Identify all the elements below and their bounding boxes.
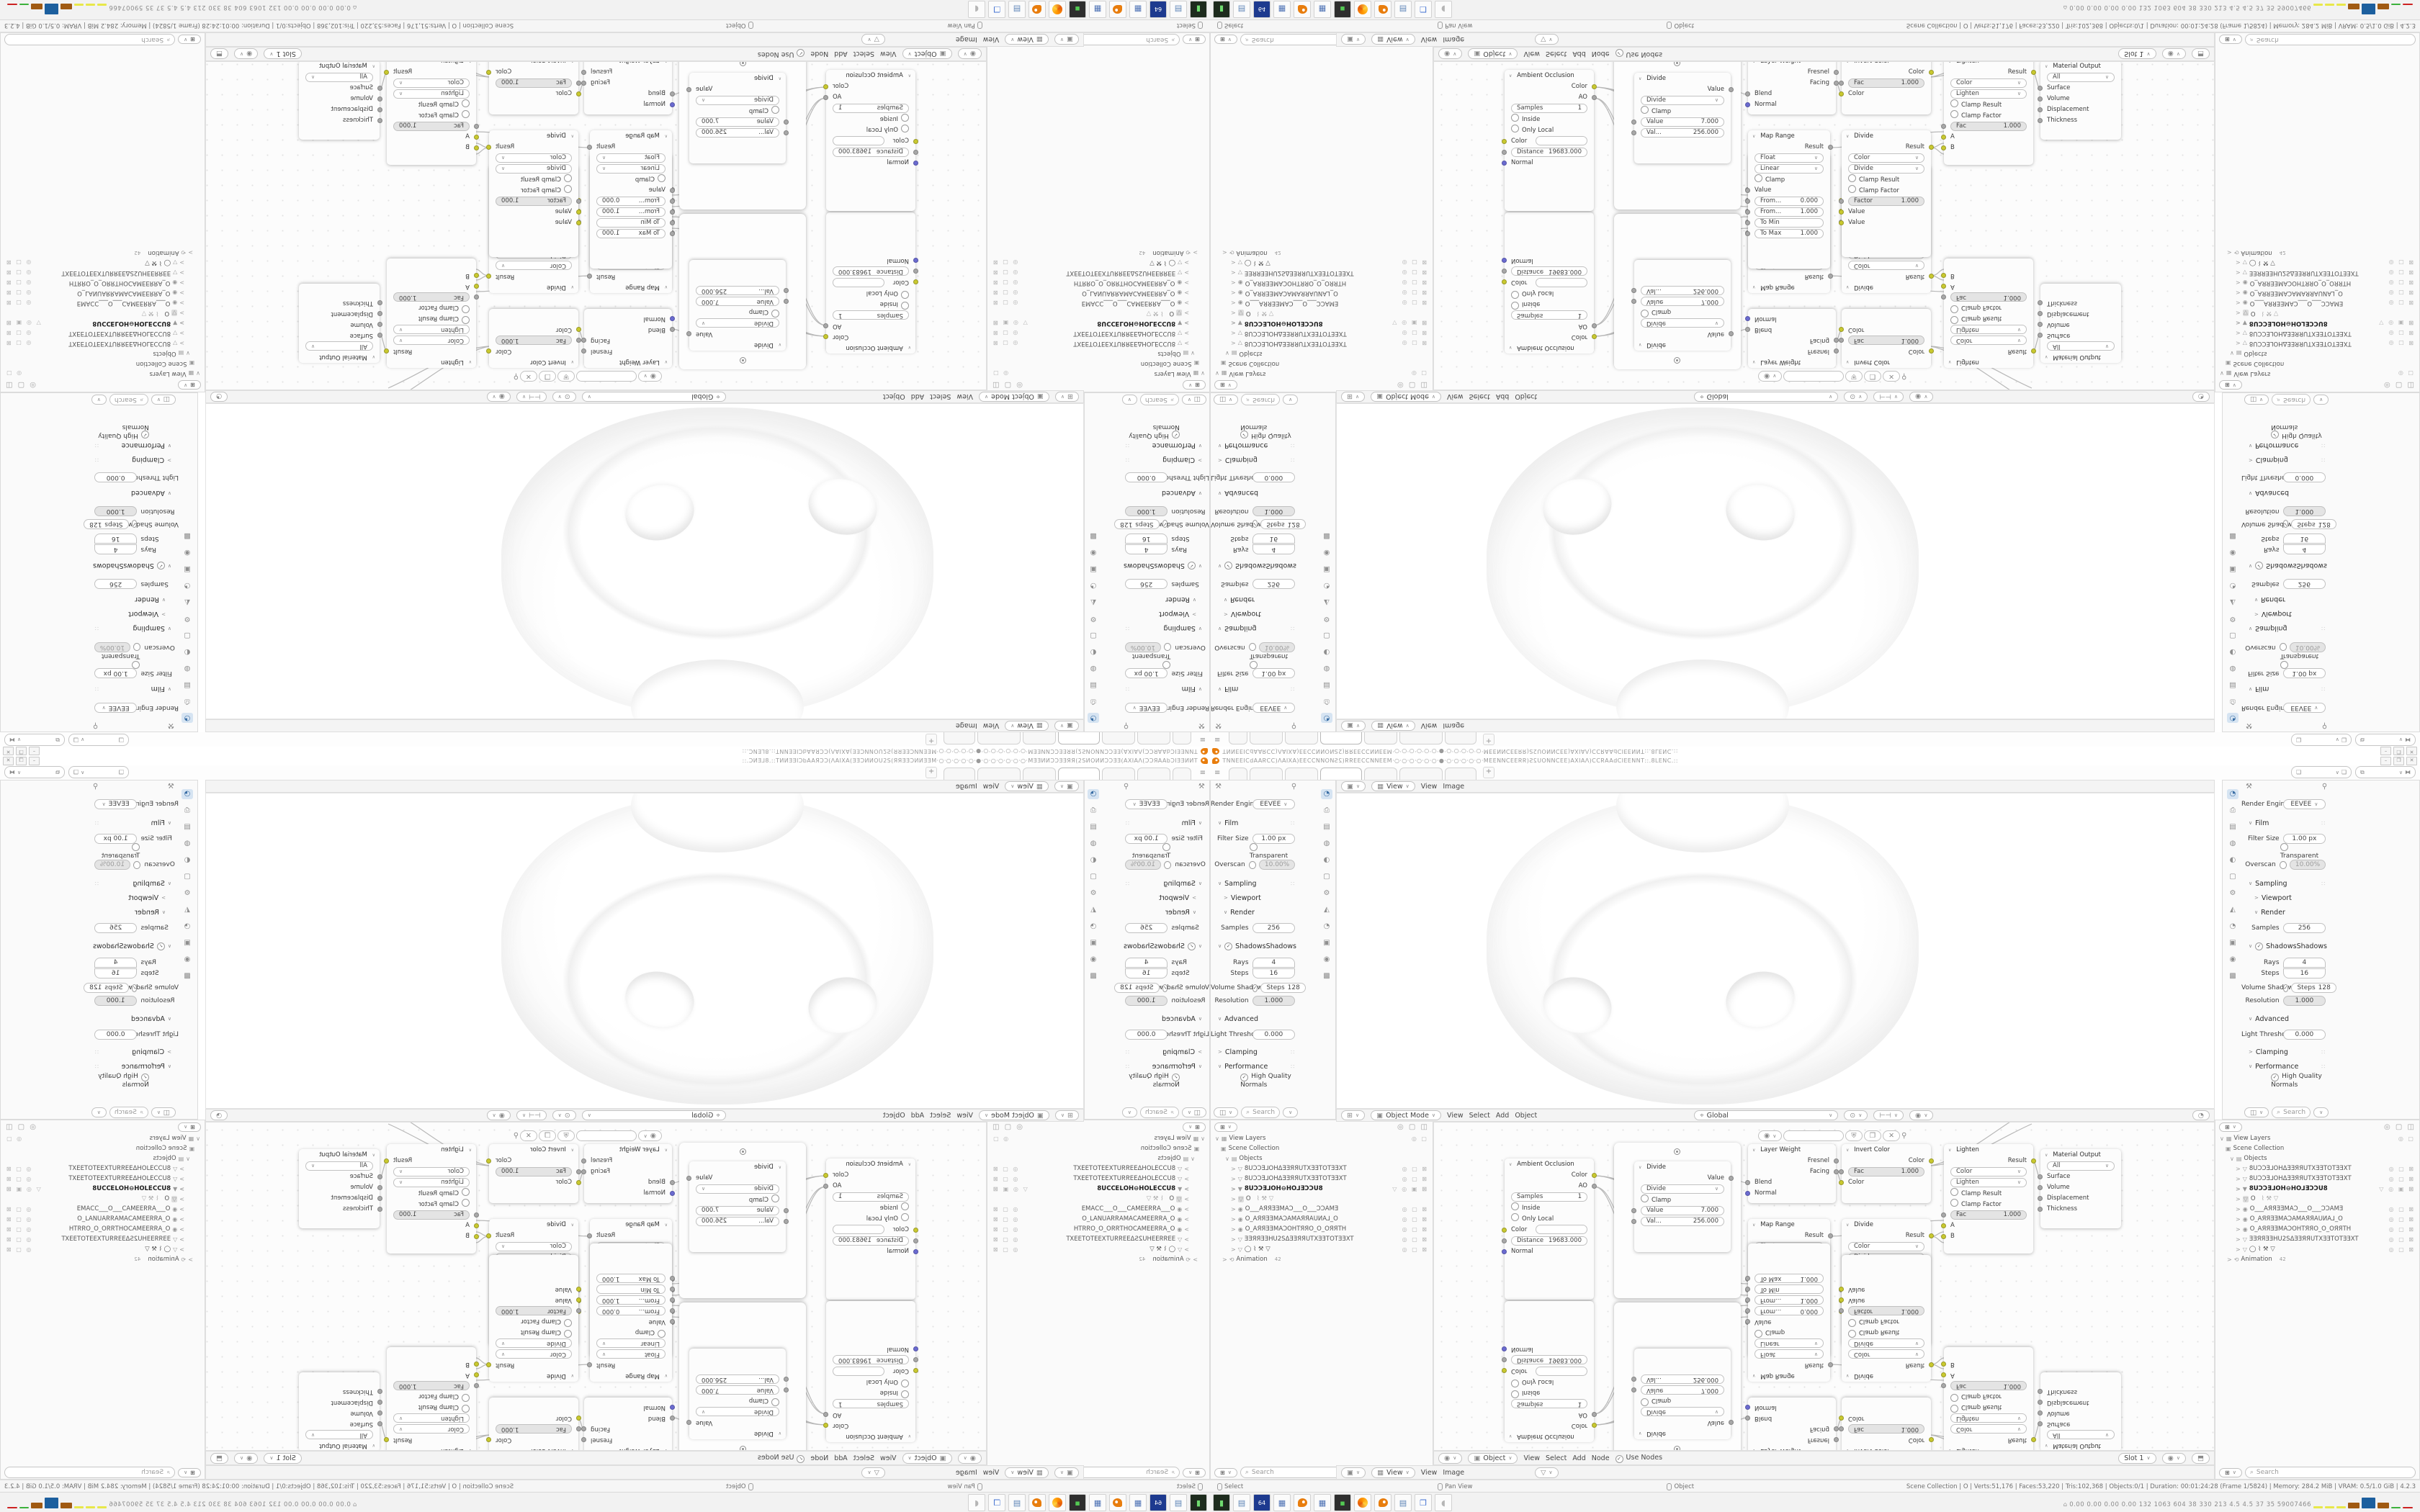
shader-context-select[interactable]: ▣Object∨: [1468, 1453, 1518, 1464]
outliner-row[interactable]: >▽8UƆƆƎ⅃OHΔƎƎЯЯUTXƎƎTOTƎƎXT◎ ▢ ⊠: [1211, 1174, 1433, 1184]
outliner-row-active[interactable]: >▼8UƆƆƎ⅃OH⊖HO⅃ƎƆƆU8▽ ◎ ▣ ⊠: [987, 318, 1209, 328]
outliner-row[interactable]: >◉O_AЯЯƎƎMAƆAMAЯЯAUИA⅃_O◎ ▢ ⊠: [1, 288, 205, 298]
filter-size-field[interactable]: 1.00 px: [1125, 668, 1168, 678]
notepad-icon[interactable]: ▤: [1394, 1, 1412, 18]
blender-icon[interactable]: [1028, 1494, 1046, 1511]
outliner-row-viewlayers[interactable]: ∨▦View Layers◎ ▢: [987, 369, 1209, 379]
image-view-select[interactable]: ▦View∨: [1371, 721, 1415, 731]
outliner-row[interactable]: >◉O___AЯЯƎƎMAƆ___O___ƆƆAMƎ◎ ▢ ⊠: [1, 298, 205, 308]
gimp-icon[interactable]: ◖: [1435, 1494, 1452, 1511]
snap-toggle[interactable]: ⊙∨: [1844, 392, 1868, 402]
transparent-toggle[interactable]: Transparent: [94, 653, 140, 670]
node-layer-weight[interactable]: ∨ Layer Weight Fresnel Facing Blend Norm…: [584, 61, 672, 114]
dividec-clamp-factor-toggle[interactable]: Clamp Factor: [1842, 1316, 1931, 1327]
shading-toggle[interactable]: ◔: [2192, 392, 2210, 402]
volume-steps-field[interactable]: Steps128: [1114, 519, 1159, 529]
gimp-icon[interactable]: ◖: [968, 1494, 985, 1511]
lighten-fac-field[interactable]: Fac1.000: [1950, 122, 2027, 131]
image-view-select[interactable]: ▦View∨: [1005, 721, 1049, 731]
hq-normals-toggle[interactable]: ✓High Quality Normals: [94, 1073, 149, 1089]
maprange-interp-select[interactable]: Linear∨: [1754, 1338, 1824, 1348]
outliner-row[interactable]: >▽8UƆƆƎ⅃OHΔƎƎЯЯUTXƎƎTOTƎƎXT◎ ▢ ⊠: [1211, 338, 1433, 348]
node-divide-color[interactable]: ∨ Divide Result Color∨ Divide∨ Clamp Res…: [489, 130, 578, 257]
resolution-field[interactable]: 1.000: [2283, 506, 2326, 516]
files-icon[interactable]: ❐: [988, 1494, 1005, 1511]
shading-toggle[interactable]: ◔: [210, 392, 228, 402]
files-icon[interactable]: ❐: [1415, 1, 1432, 18]
notepad-icon[interactable]: ▤: [1170, 1494, 1187, 1511]
properties-tab-strip[interactable]: ◔⎙ ▤◍ ◐▢ ⚙◭ ◔▣ ◉▩: [179, 789, 195, 981]
outliner-filter-button[interactable]: ⊞∨: [1183, 1468, 1206, 1477]
node-divide-color[interactable]: ∨ Divide Result Color∨ Divide∨ Clamp Res…: [1842, 1255, 1931, 1382]
workspace-tab[interactable]: [1399, 732, 1443, 744]
properties-tab-strip[interactable]: ◔⎙ ▤◍ ◐▢ ⚙◭ ◔▣ ◉▩: [179, 531, 195, 723]
outliner-row-objects[interactable]: ∨▤Objects: [2215, 348, 2419, 359]
outliner-row[interactable]: >◉O_AЯЯƎƎMAƆOHTЯЯO_O_OЯЯTH◎ ▢ ⊠: [2215, 1224, 2419, 1234]
options-button[interactable]: ∨: [1122, 395, 1137, 405]
menu-select[interactable]: Select: [853, 1454, 874, 1462]
resolution-field[interactable]: 1.000: [94, 996, 138, 1006]
volume-steps-field[interactable]: Steps128: [84, 519, 128, 529]
workspace-tab-active[interactable]: [1320, 732, 1362, 744]
rays-field[interactable]: 4: [2283, 544, 2326, 554]
lighten-type-select[interactable]: Color∨: [393, 1424, 470, 1434]
pin-icon[interactable]: ⚲: [93, 721, 98, 729]
blender-icon[interactable]: [1109, 1494, 1126, 1511]
properties-tab-strip[interactable]: ◔⎙ ▤◍ ◐▢ ⚙◭ ◔▣ ◉▩: [1319, 789, 1335, 981]
workspace-tab[interactable]: [1023, 732, 1056, 744]
pin-icon[interactable]: ⚲: [2322, 783, 2327, 791]
outliner-row[interactable]: >◉O_AЯЯƎƎMAƆAMAЯЯAUИA⅃_O◎ ▢ ⊠: [1211, 288, 1433, 298]
film-section[interactable]: ∨Film∷: [2241, 819, 2331, 827]
node-divide-a[interactable]: ∨ Divide Value Divide∨ Clamp Value7.000 …: [1634, 73, 1731, 163]
id-mask-button[interactable]: ⬒: [210, 49, 228, 60]
ao-inside-toggle[interactable]: Inside: [1505, 1387, 1594, 1398]
dividec-clamp-result-toggle[interactable]: Clamp Result: [1842, 174, 1931, 185]
menu-view[interactable]: View: [880, 50, 897, 58]
outliner-row[interactable]: >▽8UƆƆƎ⅃OHΔƎƎЯЯUTXƎƎTOTƎƎXT◎ ▢ ⊠: [1211, 1164, 1433, 1174]
outliner-row-viewlayers[interactable]: ∨▦View Layers◎ ▢: [987, 1133, 1209, 1143]
ao-color-swatch[interactable]: [833, 136, 884, 145]
overscan-field[interactable]: 10.00%: [94, 642, 130, 652]
node-material-output[interactable]: ∨ Material Output All∨ Surface Volume Di…: [2040, 1372, 2121, 1451]
gimp-icon[interactable]: ◖: [1435, 1, 1452, 18]
outliner-row[interactable]: >▽O⌇ ⚒ ▽: [2215, 308, 2419, 318]
steps-field[interactable]: 16: [94, 534, 138, 544]
overscan-toggle[interactable]: [1164, 644, 1171, 652]
outliner-row-objects[interactable]: ∨▤Objects: [2215, 1153, 2419, 1164]
performance-section[interactable]: ∨Performance∷: [1211, 442, 1301, 450]
lighten-fac-field[interactable]: Fac1.000: [393, 122, 470, 131]
menu-icon[interactable]: ≡: [1196, 734, 1206, 743]
editor-type-select[interactable]: ▣∨: [1341, 1467, 1366, 1478]
hq-normals-toggle[interactable]: ✓High Quality Normals: [1125, 423, 1180, 439]
resolution-field[interactable]: 1.000: [1125, 996, 1168, 1006]
shader-node-editor[interactable]: ◉∨ ⛨ ❐ ✕ ⚲: [205, 1122, 987, 1451]
outliner-row-active[interactable]: >▼8UƆƆƎ⅃OH⊖HO⅃ƎƆƆU8▽ ◎ ▣ ⊠: [1211, 1184, 1433, 1194]
menu-node[interactable]: Node: [1592, 1454, 1610, 1462]
pin-icon[interactable]: ⚲: [1124, 783, 1129, 791]
render-subsection[interactable]: ∨Render: [2241, 596, 2331, 604]
outliner-row[interactable]: >◉O_AЯЯƎƎMAƆAMAЯЯAUИA⅃_O◎ ▢ ⊠: [987, 288, 1209, 298]
mode-select[interactable]: ▣Object Mode∨: [1371, 392, 1441, 402]
options-button[interactable]: ∨: [1283, 1107, 1298, 1117]
divide-clamp-toggle[interactable]: Clamp: [1634, 106, 1731, 117]
maprange-type-select[interactable]: Float∨: [596, 1349, 665, 1359]
node-invert-color[interactable]: ∨ Invert Color Color Fac1.000 Color: [1842, 1398, 1931, 1451]
divide-value2-field[interactable]: Val...256.000: [1641, 1374, 1724, 1384]
notepad-icon[interactable]: ▤: [1170, 1, 1187, 18]
menu-image[interactable]: Image: [1443, 783, 1464, 791]
outliner-row-animation[interactable]: >⟲Animation42: [987, 1254, 1209, 1264]
node-map-range[interactable]: ∨ Map Range Result Float∨ Linear∨ Clamp …: [1748, 1243, 1830, 1382]
mode-select[interactable]: ▣Object Mode∨: [979, 392, 1049, 402]
editor-type-select[interactable]: ▣∨: [1054, 35, 1079, 45]
options-button[interactable]: ∨: [2313, 1107, 2329, 1117]
menu-select[interactable]: Select: [1469, 393, 1490, 401]
film-section[interactable]: ∨Film∷: [1119, 819, 1209, 827]
menu-view[interactable]: View: [1421, 36, 1438, 44]
editor-type-select[interactable]: ⊞∨: [1055, 392, 1079, 402]
light-threshold-field[interactable]: 0.000: [2283, 1030, 2326, 1040]
use-nodes-toggle[interactable]: ✓Use Nodes: [1615, 50, 1663, 59]
menu-image[interactable]: Image: [1443, 1469, 1464, 1477]
divide-op-select[interactable]: Divide∨: [696, 96, 779, 105]
node-layer-weight[interactable]: ∨ Layer Weight Fresnel Facing Blend Norm…: [584, 1398, 672, 1451]
outliner-row[interactable]: >▽8UƆƆƎ⅃OHΔƎƎЯЯUTXƎƎTOTƎƎXT◎ ▢ ⊠: [2215, 328, 2419, 338]
advanced-section[interactable]: ∨Advanced: [2241, 1015, 2331, 1023]
terminal-icon[interactable]: ▮: [1190, 1494, 1207, 1511]
hq-normals-toggle[interactable]: ✓High Quality Normals: [2271, 423, 2326, 439]
use-nodes-toggle[interactable]: ✓Use Nodes: [758, 50, 805, 59]
menu-object[interactable]: Object: [883, 1112, 905, 1120]
overscan-toggle[interactable]: [133, 644, 140, 652]
ao-samples-field[interactable]: Samples1: [1511, 1399, 1587, 1408]
divide-op-select[interactable]: Divide∨: [696, 1407, 779, 1416]
editor-type-select[interactable]: ▣∨: [1341, 721, 1366, 731]
editor-type-select[interactable]: ◉∨: [1438, 1453, 1462, 1464]
shader-context-select[interactable]: ▣Object∨: [1468, 49, 1518, 60]
filter-funnel-button[interactable]: ▽∨: [861, 1467, 884, 1478]
shader-node-editor[interactable]: ◉∨ ⛨ ❐ ✕ ⚲: [1433, 61, 2215, 390]
samples-field[interactable]: 256: [1252, 579, 1296, 589]
outliner-filter-icons[interactable]: ◎ ▢ ◫: [2384, 382, 2416, 390]
menu-view[interactable]: View: [983, 783, 1000, 791]
lighten-op-select[interactable]: Lighten∨: [393, 1413, 470, 1423]
performance-section[interactable]: ∨Performance∷: [89, 442, 179, 450]
advanced-section[interactable]: ∨Advanced: [1119, 1015, 1209, 1023]
steps-field[interactable]: 16: [1125, 534, 1168, 544]
resolution-field[interactable]: 1.000: [94, 506, 138, 516]
outliner-row-objects[interactable]: ∨▤Objects: [1211, 348, 1433, 359]
ao-samples-field[interactable]: Samples1: [1511, 104, 1587, 113]
editor-type-button[interactable]: ◫∨: [2244, 395, 2269, 405]
node-invert-color[interactable]: ∨ Invert Color Color Fac1.000 Color: [1842, 61, 1931, 114]
shadows-section[interactable]: ∨✓ShadowsShadows: [89, 562, 179, 570]
outliner-search-input[interactable]: ⌕Search: [2245, 1467, 2416, 1478]
dividec-factor-field[interactable]: Factor1.000: [1848, 197, 1924, 206]
node-lighten[interactable]: ∨ Lighten Result Color∨ Lighten∨ Clamp R…: [1944, 61, 2033, 165]
editor-type-button[interactable]: ◫∨: [2244, 1107, 2269, 1117]
light-threshold-field[interactable]: 0.000: [94, 472, 138, 482]
node-ambient-occlusion[interactable]: ∨ Ambient Occlusion Color AO Samples1 In…: [826, 1301, 915, 1442]
search-input[interactable]: ⌕Search: [109, 394, 148, 405]
menu-select[interactable]: Select: [930, 393, 951, 401]
dividec-factor-field[interactable]: Factor1.000: [496, 197, 572, 206]
outliner-row[interactable]: >▽8UƆƆƎ⅃OHΔƎƎЯЯUTXƎƎTOTƎƎXT◎ ▢ ⊠: [987, 328, 1209, 338]
snap-toggle[interactable]: ⊙∨: [552, 392, 576, 402]
outliner-row[interactable]: >▽O⌇ ⚒ ▽: [987, 308, 1209, 318]
performance-section[interactable]: ∨Performance∷: [2241, 1063, 2331, 1071]
render-subsection[interactable]: ∨Render: [1211, 909, 1301, 917]
mode-select[interactable]: ▣Object Mode∨: [1371, 1110, 1441, 1120]
menu-image[interactable]: Image: [956, 783, 977, 791]
rays-field[interactable]: 4: [1125, 544, 1168, 554]
search-input[interactable]: ⌕Search: [2272, 394, 2311, 405]
workspace-tab[interactable]: [1023, 768, 1056, 780]
restore-button[interactable]: ❐: [2393, 747, 2404, 756]
node-invert-color[interactable]: ∨ Invert Color Color Fac1.000 Color: [489, 61, 578, 114]
render-subsection[interactable]: ∨Render: [89, 909, 179, 917]
workspace-tab[interactable]: [1250, 732, 1283, 744]
overscan-toggle[interactable]: [2280, 861, 2287, 869]
steps-field[interactable]: 16: [1125, 968, 1168, 978]
volume-steps-field[interactable]: Steps128: [1114, 983, 1159, 993]
outliner-row[interactable]: >▽◯ ⌇ ⚒ ▽◎ ▢ ⊠: [1, 1244, 205, 1254]
ao-inside-toggle[interactable]: Inside: [826, 1387, 915, 1398]
dividec-clamp-result-toggle[interactable]: Clamp Result: [489, 174, 578, 185]
clamping-section[interactable]: >Clamping∷: [1119, 456, 1209, 464]
samples-field[interactable]: 256: [2283, 923, 2326, 933]
outliner-row-scene-collection[interactable]: ▣Scene Collection: [1, 359, 205, 369]
pin-icon[interactable]: ⚲: [1291, 783, 1296, 791]
menu-view[interactable]: View: [956, 393, 973, 401]
menu-select[interactable]: Select: [853, 50, 874, 58]
calculator-icon[interactable]: ▦: [1273, 1494, 1291, 1511]
search-input[interactable]: ⌕Search: [109, 1107, 148, 1118]
outliner-row[interactable]: >◉O_AЯЯƎƎMAƆOHTЯЯO_O_OЯЯTH◎ ▢ ⊠: [1211, 278, 1433, 288]
menu-icon[interactable]: ≡: [1214, 734, 1224, 743]
menu-view[interactable]: View: [1421, 783, 1438, 791]
shadows-section[interactable]: ∨✓ShadowsShadows: [1119, 562, 1209, 570]
outliner-filter-icons[interactable]: ◎ ▢ ◫: [1397, 382, 1429, 390]
image-view-select[interactable]: ▦View∨: [1371, 35, 1415, 45]
maprange-type-select[interactable]: Float∨: [1754, 1349, 1824, 1359]
advanced-section[interactable]: ∨Advanced: [89, 1015, 179, 1023]
node-ambient-occlusion[interactable]: ∨ Ambient Occlusion Color AO Samples1 In…: [1505, 70, 1594, 211]
outliner-row-animation[interactable]: >⟲Animation42: [1211, 248, 1433, 258]
outliner-display-mode[interactable]: ⊞∨: [1214, 1122, 1237, 1132]
menu-view[interactable]: View: [983, 1469, 1000, 1477]
workspace-tab-active[interactable]: [1320, 768, 1362, 780]
filter-funnel-button[interactable]: ▽∨: [861, 35, 884, 45]
outliner-row-animation[interactable]: >⟲Animation42: [987, 248, 1209, 258]
render-engine-select[interactable]: EEVEE∨: [1252, 703, 1296, 713]
divide-op-select[interactable]: Divide∨: [1641, 1407, 1724, 1416]
clamping-section[interactable]: >Clamping∷: [89, 456, 179, 464]
light-threshold-field[interactable]: 0.000: [1125, 472, 1168, 482]
menu-add[interactable]: Add: [834, 1454, 847, 1462]
node-lighten[interactable]: ∨ Lighten Result Color∨ Lighten∨ Clamp R…: [387, 1347, 476, 1451]
blender-icon[interactable]: [1109, 1, 1126, 18]
pin-icon[interactable]: ⚲: [1291, 721, 1296, 729]
menu-icon[interactable]: ≡: [1196, 769, 1206, 778]
editor-type-button[interactable]: ◫∨: [1214, 1107, 1238, 1117]
menu-select[interactable]: Select: [1546, 50, 1567, 58]
scene-selector[interactable]: ❏∨❏: [68, 734, 129, 746]
maprange-from-max-field[interactable]: From...1.000: [1754, 207, 1824, 217]
outliner-display-mode[interactable]: ⊞∨: [1183, 381, 1206, 390]
menu-select[interactable]: Select: [1469, 1112, 1490, 1120]
maprange-type-select[interactable]: Float∨: [596, 153, 665, 163]
outliner-row[interactable]: >◉O_AЯЯƎƎMAƆOHTЯЯO_O_OЯЯTH◎ ▢ ⊠: [2215, 278, 2419, 288]
blender-icon[interactable]: [1028, 1, 1046, 18]
menu-image[interactable]: Image: [956, 36, 977, 44]
gimp-icon[interactable]: ◖: [968, 1, 985, 18]
rays-field[interactable]: 4: [1252, 958, 1296, 968]
menu-view[interactable]: View: [983, 36, 1000, 44]
transform-orientation-select[interactable]: ⌖Global∨: [582, 392, 726, 402]
properties-tab-strip[interactable]: ◔⎙ ▤◍ ◐▢ ⚙◭ ◔▣ ◉▩: [2225, 531, 2241, 723]
calculator-icon[interactable]: ▦: [1089, 1494, 1106, 1511]
blender-icon[interactable]: [1294, 1, 1311, 18]
material-preview-button[interactable]: ◉∨: [2162, 49, 2186, 60]
maprange-from-min-field[interactable]: From...0.000: [596, 197, 665, 206]
overscan-field[interactable]: 10.00%: [2290, 642, 2326, 652]
editor-type-select[interactable]: ▣∨: [1341, 781, 1366, 791]
outliner-row-animation[interactable]: >⟲Animation42: [1, 1254, 205, 1264]
outliner-filter-button[interactable]: ⊞∨: [2219, 35, 2242, 45]
maprange-clamp-toggle[interactable]: Clamp: [1748, 1327, 1830, 1338]
workspace-tab[interactable]: [1229, 768, 1247, 780]
view-layer-selector[interactable]: ⧉∨⧓: [4, 766, 65, 778]
shadows-section[interactable]: ∨✓ShadowsShadows: [1211, 562, 1301, 570]
slot-select[interactable]: Slot 1∨: [264, 1453, 301, 1464]
blender-icon[interactable]: [1374, 1494, 1391, 1511]
floppy64-icon[interactable]: 64: [1253, 1, 1270, 18]
shadows-section[interactable]: ∨✓ShadowsShadows: [2241, 562, 2331, 570]
ao-color-swatch[interactable]: [833, 1367, 884, 1376]
ao-distance-field[interactable]: Distance19683.000: [833, 1355, 909, 1364]
outliner-row[interactable]: >◉O_AЯЯƎƎMAƆAMAЯЯAUИA⅃_O◎ ▢ ⊠: [1211, 1214, 1433, 1224]
outliner-row[interactable]: >▽◯ ⌇ ⚒ ▽◎ ▢ ⊠: [2215, 1244, 2419, 1254]
use-nodes-toggle[interactable]: ✓Use Nodes: [758, 1454, 805, 1463]
maprange-interp-select[interactable]: Linear∨: [596, 164, 665, 174]
ao-distance-field[interactable]: Distance19683.000: [1511, 148, 1587, 157]
editor-type-button[interactable]: ◫∨: [1182, 1107, 1206, 1117]
outliner-row[interactable]: >▽O⌇ ⚒ ▽: [1211, 308, 1433, 318]
editor-type-select[interactable]: ▣∨: [1054, 1467, 1079, 1478]
ao-color-swatch[interactable]: [1536, 136, 1587, 145]
maprange-from-min-field[interactable]: From...0.000: [1754, 197, 1824, 206]
outliner-display-mode[interactable]: ⊞∨: [178, 1122, 201, 1132]
render-subsection[interactable]: ∨Render: [1211, 596, 1301, 604]
lighten-op-select[interactable]: Lighten∨: [1950, 89, 2027, 99]
menu-object[interactable]: Object: [1515, 393, 1537, 401]
outliner-row[interactable]: >◉O_AЯЯƎƎMAƆOHTЯЯO_O_OЯЯTH◎ ▢ ⊠: [987, 1224, 1209, 1234]
blender-icon[interactable]: [1374, 1, 1391, 18]
render-engine-select[interactable]: EEVEE∨: [1125, 703, 1168, 713]
film-section[interactable]: ∨Film∷: [1211, 685, 1301, 693]
search-input[interactable]: ⌕Search: [2272, 1107, 2311, 1118]
render-engine-select[interactable]: EEVEE∨: [2283, 799, 2326, 809]
light-threshold-field[interactable]: 0.000: [1125, 1030, 1168, 1040]
sampling-section[interactable]: ∨Sampling∷: [1119, 625, 1209, 633]
outliner-row-objects[interactable]: ∨▤Objects: [1, 1153, 205, 1164]
search-input[interactable]: ⌕Search: [1241, 394, 1280, 405]
outliner-row-objects[interactable]: ∨▤Objects: [987, 348, 1209, 359]
performance-section[interactable]: ∨Performance∷: [2241, 442, 2331, 450]
outliner-row-active[interactable]: >▼8UƆƆƎ⅃OH⊖HO⅃ƎƆƆU8▽ ◎ ▣ ⊠: [2215, 1184, 2419, 1194]
firefox-icon[interactable]: [1354, 1, 1371, 18]
calculator-icon[interactable]: ▦: [1314, 1, 1331, 18]
dividec-op-select[interactable]: Divide∨: [496, 1338, 572, 1348]
workspace-tab[interactable]: [1250, 768, 1283, 780]
volume-shadows-toggle[interactable]: ✓: [1162, 984, 1168, 992]
invert-fac-field[interactable]: Fac1.000: [496, 1424, 572, 1434]
transform-orientation-select[interactable]: ⌖Global∨: [582, 1110, 726, 1120]
outliner-row-active[interactable]: >▼8UƆƆƎ⅃OH⊖HO⅃ƎƆƆU8▽ ◎ ▣ ⊠: [2215, 318, 2419, 328]
proportional-edit-toggle[interactable]: ⊢⊣∨: [1873, 392, 1904, 402]
overlays-toggle[interactable]: ◉∨: [1909, 1110, 1933, 1120]
outliner-row-scene-collection[interactable]: ▣Scene Collection: [1211, 359, 1433, 369]
menu-object[interactable]: Object: [883, 393, 905, 401]
monitor-icon[interactable]: ▪: [1334, 1494, 1351, 1511]
volume-shadows-toggle[interactable]: ✓: [132, 984, 138, 992]
divide-value1-field[interactable]: Value7.000: [696, 117, 779, 127]
viewport-3d[interactable]: [205, 403, 1084, 719]
outliner-search-input[interactable]: ⌕Search: [4, 1467, 175, 1478]
maprange-to-max-field[interactable]: To Max1.000: [1754, 1274, 1824, 1283]
workspace-tab[interactable]: [977, 732, 1021, 744]
outliner-row[interactable]: >◉O___AЯЯƎƎMAƆ___O___ƆƆAMƎ◎ ▢ ⊠: [1211, 1204, 1433, 1214]
dividec-op-select[interactable]: Divide∨: [496, 164, 572, 174]
volume-shadows-toggle[interactable]: ✓: [1252, 984, 1258, 992]
workspace-tab[interactable]: [1285, 768, 1318, 780]
dividec-type-select[interactable]: Color∨: [496, 1349, 572, 1359]
dividec-clamp-factor-toggle[interactable]: Clamp Factor: [1842, 185, 1931, 196]
outliner-row[interactable]: >◉O_AЯЯƎƎMAƆAMAЯЯAUИA⅃_O◎ ▢ ⊠: [987, 1214, 1209, 1224]
outliner-filter-icons[interactable]: ◎ ▢ ◫: [4, 1123, 36, 1131]
transparent-toggle[interactable]: Transparent: [1250, 843, 1295, 860]
restore-button[interactable]: ❐: [16, 757, 27, 765]
menu-node[interactable]: Node: [1592, 50, 1610, 58]
viewport-subsection[interactable]: >Viewport: [1211, 894, 1301, 902]
node-divide-a[interactable]: ∨ Divide Value Divide∨ Clamp Value7.000 …: [1634, 1349, 1731, 1439]
sampling-section[interactable]: ∨Sampling∷: [1211, 625, 1301, 633]
outliner-row-viewlayers[interactable]: ∨▦View Layers◎ ▢: [1211, 369, 1433, 379]
overlays-toggle[interactable]: ◉∨: [487, 392, 511, 402]
lighten-op-select[interactable]: Lighten∨: [393, 89, 470, 99]
hq-normals-toggle[interactable]: ✓High Quality Normals: [2271, 1073, 2326, 1089]
outliner-row-animation[interactable]: >⟲Animation42: [1, 248, 205, 258]
id-mask-button[interactable]: ⬒: [2192, 49, 2210, 60]
lighten-clamp-factor-toggle[interactable]: Clamp Factor: [387, 1391, 476, 1402]
ao-only-local-toggle[interactable]: Only Local: [1505, 125, 1594, 135]
lighten-clamp-result-toggle[interactable]: Clamp Result: [1944, 99, 2033, 110]
lighten-type-select[interactable]: Color∨: [1950, 78, 2027, 88]
workspace-tab[interactable]: [1364, 768, 1397, 780]
shadows-section[interactable]: ∨✓ShadowsShadows: [89, 942, 179, 950]
render-engine-select[interactable]: EEVEE∨: [1252, 799, 1296, 809]
overscan-toggle[interactable]: [1249, 861, 1256, 869]
node-material-output[interactable]: ∨ Material Output All∨ Surface Volume Di…: [299, 61, 380, 140]
outliner-row-active[interactable]: >▼8UƆƆƎ⅃OH⊖HO⅃ƎƆƆU8▽ ◎ ▣ ⊠: [1211, 318, 1433, 328]
clamping-section[interactable]: >Clamping∷: [1119, 1048, 1209, 1056]
performance-section[interactable]: ∨Performance∷: [89, 1063, 179, 1071]
sampling-section[interactable]: ∨Sampling∷: [89, 625, 179, 633]
invert-fac-field[interactable]: Fac1.000: [1848, 78, 1924, 88]
